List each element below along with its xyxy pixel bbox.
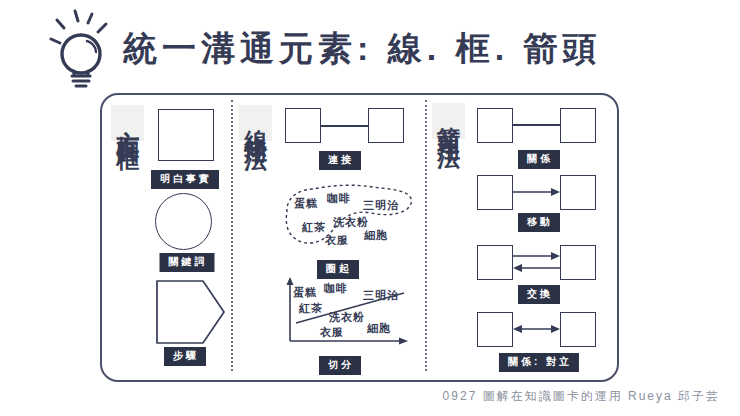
- sketchnote-canvas: 統一溝通元素: 線. 框. 箭頭 方框圓框 明白事實 關鍵詞 步驟 線條用法 連…: [0, 0, 740, 416]
- column-divider-1: [231, 100, 233, 371]
- blob-word: 三明治: [363, 198, 399, 213]
- pentagon-shape: [156, 280, 226, 344]
- badge-divide: 切分: [319, 356, 361, 375]
- page-title: 統一溝通元素: 線. 框. 箭頭: [123, 26, 602, 72]
- connect-box-right: [368, 108, 404, 143]
- divide-word: 洗衣粉: [329, 310, 365, 325]
- divide-word: 蛋糕: [293, 285, 317, 300]
- arrow-row-box: [560, 175, 596, 210]
- arrow-row-box: [560, 108, 596, 143]
- circle-shape: [155, 193, 212, 250]
- blob-word: 細胞: [364, 228, 388, 243]
- relation-line: [512, 124, 561, 126]
- divide-word: 衣服: [320, 325, 344, 340]
- arrow-row-box: [477, 245, 513, 280]
- divide-word: 咖啡: [324, 281, 348, 296]
- vertical-header-arrows: 箭頭用法: [432, 103, 465, 139]
- blob-word: 咖啡: [327, 191, 351, 206]
- arrow-row-box: [560, 245, 596, 280]
- divide-word: 細胞: [367, 321, 391, 336]
- square-shape: [158, 109, 214, 161]
- connect-box-left: [285, 108, 321, 143]
- badge-move: 移動: [518, 213, 560, 232]
- badge-square: 明白事實: [151, 170, 219, 189]
- badge-exchange: 交換: [518, 285, 560, 304]
- badge-relation: 關係: [518, 150, 560, 169]
- blob-word: 衣服: [325, 233, 349, 248]
- exchange-arrows: [513, 250, 560, 274]
- arrow-row-box: [477, 312, 513, 347]
- badge-connect: 連接: [319, 151, 361, 170]
- vertical-header-boxes: 方框圓框: [111, 105, 144, 141]
- divide-word: 三明治: [363, 288, 399, 303]
- arrow-row-box: [477, 108, 513, 143]
- blob-word: 紅茶: [302, 220, 326, 235]
- column-divider-2: [425, 100, 427, 371]
- divide-word: 紅茶: [299, 301, 323, 316]
- move-arrow: [513, 184, 560, 200]
- lightbulb-icon: [44, 8, 118, 92]
- arrow-row-box: [477, 175, 513, 210]
- opposition-double-arrow: [513, 321, 560, 337]
- connect-line: [320, 125, 369, 127]
- footer-credit: 0927 圖解在知識圖卡的運用 Rueya 邱子芸: [443, 388, 720, 405]
- vertical-header-lines: 線條用法: [239, 105, 272, 141]
- badge-opposition: 關係: 對立: [499, 353, 579, 372]
- badge-pentagon: 步驟: [164, 347, 206, 366]
- blob-word: 蛋糕: [294, 196, 318, 211]
- arrow-row-box: [560, 312, 596, 347]
- badge-circle: 關鍵詞: [160, 253, 215, 272]
